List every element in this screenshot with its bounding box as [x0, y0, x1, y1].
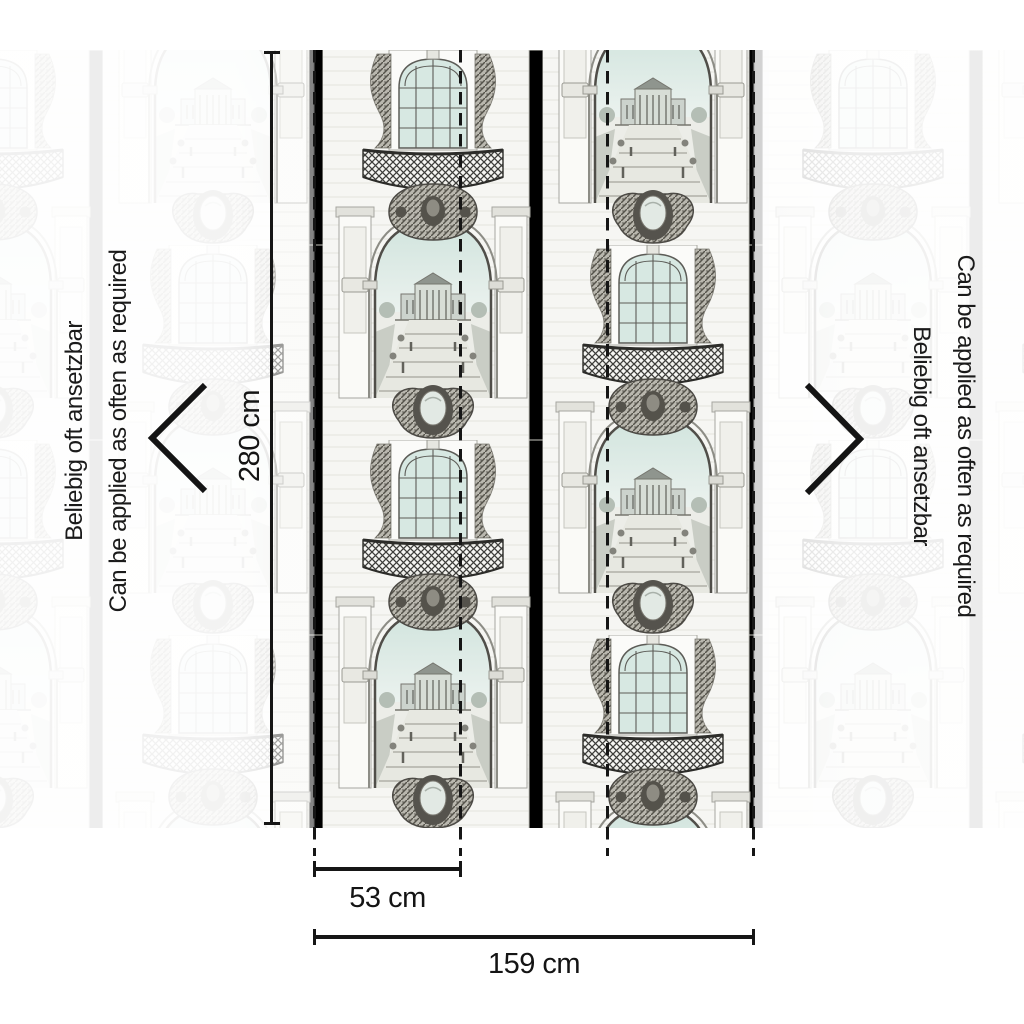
panel-seam-line-1 — [313, 50, 316, 856]
panel-seam-line-3 — [606, 50, 609, 856]
panel-width-dimension-line — [314, 867, 461, 871]
chevron-right-icon — [800, 377, 875, 502]
repeat-note-right-en: Can be applied as often as required — [943, 216, 987, 656]
panel-width-label: 53 cm — [302, 882, 473, 915]
panel-seam-line-2 — [459, 50, 462, 856]
height-label: 280 cm — [234, 366, 266, 506]
repeat-note-right: Can be applied as often as required Beli… — [899, 216, 987, 656]
total-width-label: 159 cm — [314, 948, 754, 981]
chevron-left-icon — [140, 375, 215, 500]
total-width-dimension-line — [314, 935, 754, 939]
height-dimension-line — [270, 52, 273, 824]
wallpaper-dimension-diagram: 280 cm 53 cm 159 cm Beliebig oft ansetzb… — [0, 0, 1024, 1024]
repeat-note-left-en: Can be applied as often as required — [97, 211, 141, 651]
repeat-note-left: Beliebig oft ansetzbar Can be applied as… — [53, 211, 141, 651]
panel-seam-line-4 — [752, 50, 755, 856]
repeat-note-right-de: Beliebig oft ansetzbar — [899, 216, 943, 656]
repeat-note-left-de: Beliebig oft ansetzbar — [53, 211, 97, 651]
